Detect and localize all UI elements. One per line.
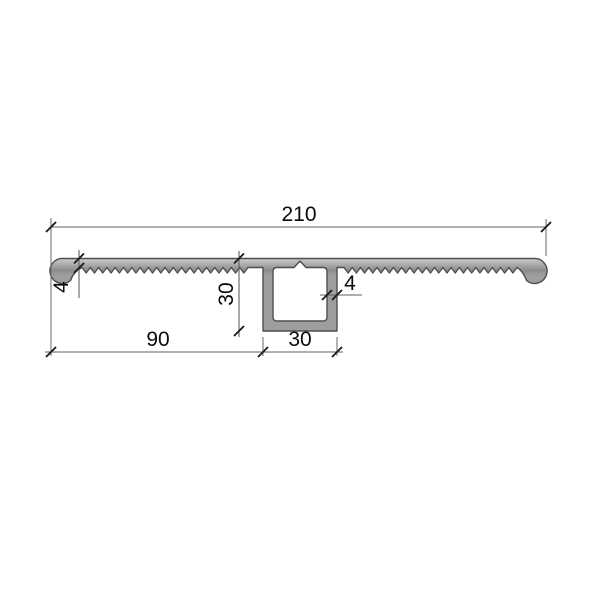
dimension-bottom-row: 90 30 bbox=[45, 328, 343, 357]
drawing-canvas: 210 4 30 4 bbox=[0, 0, 600, 600]
dim-wall-thickness-label: 4 bbox=[344, 272, 356, 295]
dim-box-width-label: 30 bbox=[288, 328, 311, 351]
dim-left-span-label: 90 bbox=[146, 328, 169, 351]
dim-plate-thickness-label: 4 bbox=[50, 281, 73, 293]
dim-total-width-label: 210 bbox=[281, 203, 316, 226]
profile-technical-drawing: 210 4 30 4 bbox=[0, 0, 600, 600]
profile-cross-section bbox=[50, 258, 547, 331]
dim-box-height-label: 30 bbox=[215, 282, 238, 305]
